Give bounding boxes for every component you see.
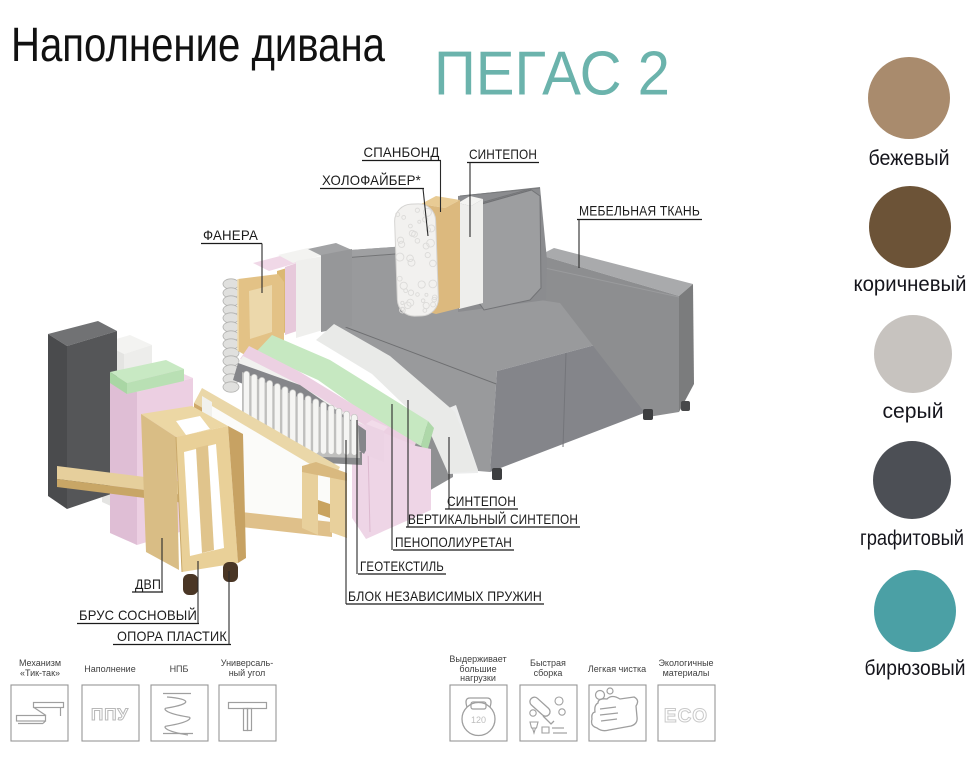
- svg-text:БРУС СОСНОВЫЙ: БРУС СОСНОВЫЙ: [79, 606, 197, 623]
- svg-text:МЕБЕЛЬНАЯ ТКАНЬ: МЕБЕЛЬНАЯ ТКАНЬ: [579, 203, 700, 219]
- svg-text:графитовый: графитовый: [860, 527, 964, 550]
- svg-text:серый: серый: [883, 400, 944, 423]
- svg-text:бирюзовый: бирюзовый: [865, 657, 966, 680]
- svg-text:нагрузки: нагрузки: [460, 673, 496, 683]
- svg-text:«Тик-так»: «Тик-так»: [20, 668, 60, 678]
- svg-text:ГЕОТЕКСТИЛЬ: ГЕОТЕКСТИЛЬ: [360, 558, 444, 574]
- svg-text:ный угол: ный угол: [229, 668, 266, 678]
- svg-text:Легкая чистка: Легкая чистка: [588, 664, 646, 674]
- svg-text:сборка: сборка: [534, 668, 563, 678]
- svg-text:НПБ: НПБ: [170, 664, 189, 674]
- svg-text:бежевый: бежевый: [869, 147, 950, 170]
- svg-text:ХОЛОФАЙБЕР*: ХОЛОФАЙБЕР*: [322, 171, 421, 188]
- svg-text:Механизм: Механизм: [19, 658, 61, 668]
- svg-text:ПЕГАС 2: ПЕГАС 2: [434, 40, 670, 109]
- svg-text:Наполнение: Наполнение: [84, 664, 135, 674]
- svg-text:ППУ: ППУ: [91, 705, 129, 724]
- svg-text:ВЕРТИКАЛЬНЫЙ СИНТЕПОН: ВЕРТИКАЛЬНЫЙ СИНТЕПОН: [408, 510, 578, 527]
- svg-text:Экологичные: Экологичные: [658, 658, 713, 668]
- svg-text:ОПОРА ПЛАСТИК: ОПОРА ПЛАСТИК: [117, 628, 228, 644]
- svg-text:120: 120: [471, 715, 486, 725]
- svg-text:Универсаль-: Универсаль-: [221, 658, 273, 668]
- svg-text:ФАНЕРА: ФАНЕРА: [203, 227, 258, 243]
- svg-text:коричневый: коричневый: [854, 273, 967, 296]
- svg-text:СИНТЕПОН: СИНТЕПОН: [447, 493, 516, 509]
- svg-text:СИНТЕПОН: СИНТЕПОН: [469, 146, 537, 162]
- svg-text:ECO: ECO: [664, 706, 708, 727]
- svg-text:ДВП: ДВП: [135, 576, 161, 592]
- svg-text:ПЕНОПОЛИУРЕТАН: ПЕНОПОЛИУРЕТАН: [395, 534, 512, 550]
- svg-text:БЛОК НЕЗАВИСИМЫХ ПРУЖИН: БЛОК НЕЗАВИСИМЫХ ПРУЖИН: [348, 588, 542, 604]
- svg-text:Быстрая: Быстрая: [530, 658, 566, 668]
- svg-text:СПАНБОНД: СПАНБОНД: [364, 144, 440, 160]
- svg-text:Выдерживает: Выдерживает: [449, 654, 506, 664]
- svg-text:материалы: материалы: [663, 668, 710, 678]
- svg-text:Наполнение дивана: Наполнение дивана: [11, 19, 385, 72]
